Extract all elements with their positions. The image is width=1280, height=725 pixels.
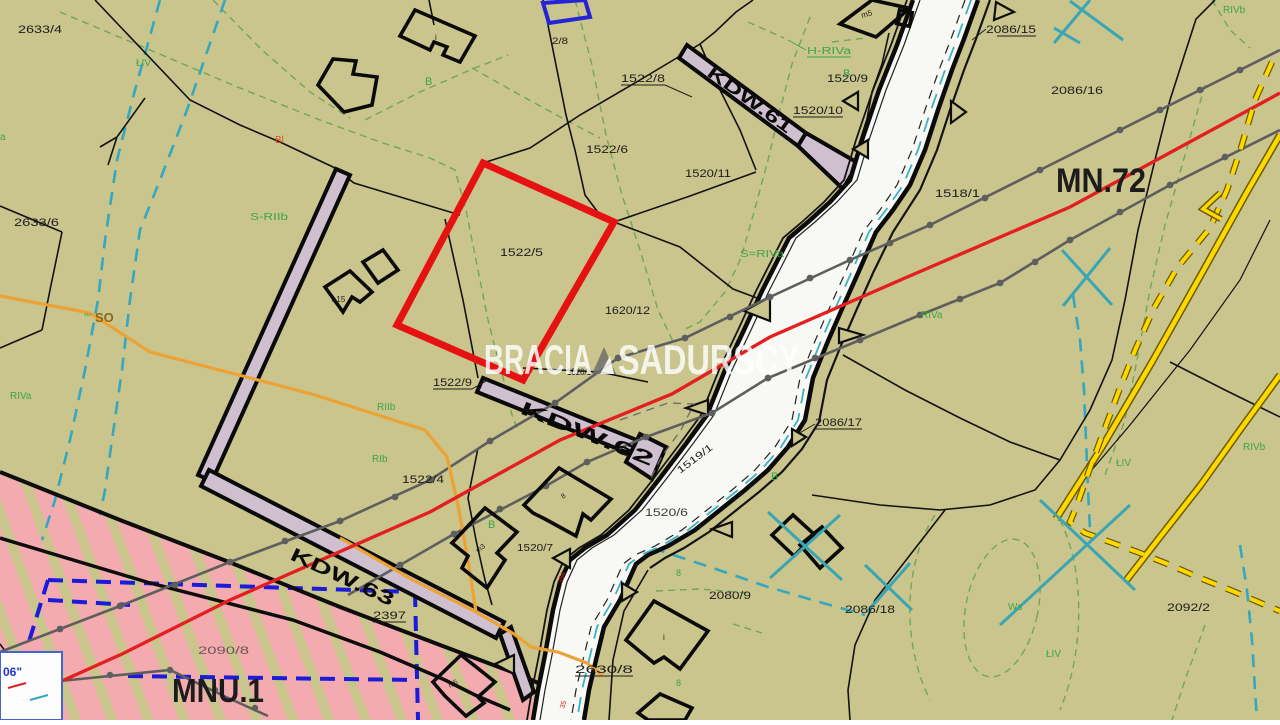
svg-text:2080/9: 2080/9 (709, 590, 751, 602)
svg-text:S-RIIb: S-RIIb (250, 212, 289, 223)
svg-text:1522/4: 1522/4 (402, 474, 444, 486)
svg-text:Ws: Ws (1008, 602, 1022, 613)
svg-text:06": 06" (3, 665, 22, 679)
svg-text:RIIb: RIIb (377, 402, 396, 413)
svg-text:B: B (843, 68, 850, 80)
svg-text:RIVb: RIVb (1223, 5, 1246, 16)
svg-text:2086/16: 2086/16 (1051, 85, 1103, 97)
svg-text:1518/1: 1518/1 (935, 188, 980, 200)
svg-text:1522/5: 1522/5 (500, 247, 543, 259)
svg-text:2086/18: 2086/18 (845, 604, 895, 616)
svg-text:≥15: ≥15 (332, 295, 346, 304)
svg-text:MN.72: MN.72 (1056, 162, 1146, 200)
svg-text:B: B (771, 471, 778, 483)
svg-text:1620/12: 1620/12 (605, 305, 650, 317)
svg-text:i: i (663, 633, 665, 642)
svg-text:1522/9: 1522/9 (433, 377, 472, 389)
svg-text:2630/8: 2630/8 (575, 664, 633, 676)
svg-text:B: B (425, 76, 432, 88)
svg-text:1522/8: 1522/8 (621, 73, 665, 85)
svg-text:1520/10: 1520/10 (793, 105, 843, 117)
svg-text:1520/11: 1520/11 (685, 168, 731, 180)
svg-text:BRACIA: BRACIA (484, 336, 592, 383)
svg-text:2397: 2397 (373, 610, 406, 622)
svg-text:B: B (488, 519, 495, 531)
svg-text:RIVa: RIVa (10, 391, 32, 402)
svg-text:2633/4: 2633/4 (18, 24, 62, 36)
svg-text:SADURSCY: SADURSCY (618, 336, 800, 383)
svg-text:2086/17: 2086/17 (815, 417, 862, 429)
svg-text:a: a (0, 132, 6, 143)
svg-text:ŁIV: ŁIV (1046, 649, 1061, 660)
svg-text:8: 8 (676, 678, 681, 688)
svg-text:8: 8 (676, 568, 681, 578)
svg-text:1520/6: 1520/6 (645, 507, 688, 519)
svg-text:ŁIV: ŁIV (136, 58, 151, 69)
svg-text:1522/6: 1522/6 (586, 144, 628, 156)
svg-text:RIVb: RIVb (1243, 442, 1266, 453)
svg-text:MNU.1: MNU.1 (172, 672, 264, 709)
svg-text:2633/6: 2633/6 (14, 217, 59, 229)
svg-text:SO: SO (95, 310, 114, 325)
svg-text:ŁIV: ŁIV (1116, 458, 1131, 469)
svg-text:2092/2: 2092/2 (1167, 602, 1210, 614)
svg-text:2/8: 2/8 (552, 36, 568, 46)
svg-text:RIVa: RIVa (921, 310, 943, 321)
svg-text:1520/7: 1520/7 (517, 543, 554, 554)
svg-text:RIb: RIb (372, 454, 388, 465)
svg-text:H-RIVa: H-RIVa (807, 46, 852, 57)
svg-text:Bl: Bl (275, 135, 284, 146)
svg-text:S=RIVa: S=RIVa (740, 249, 785, 260)
svg-text:i: i (435, 33, 437, 42)
svg-text:2086/15: 2086/15 (986, 24, 1036, 36)
svg-text:³¹²: ³¹² (84, 313, 92, 320)
svg-text:2090/8: 2090/8 (198, 645, 249, 657)
